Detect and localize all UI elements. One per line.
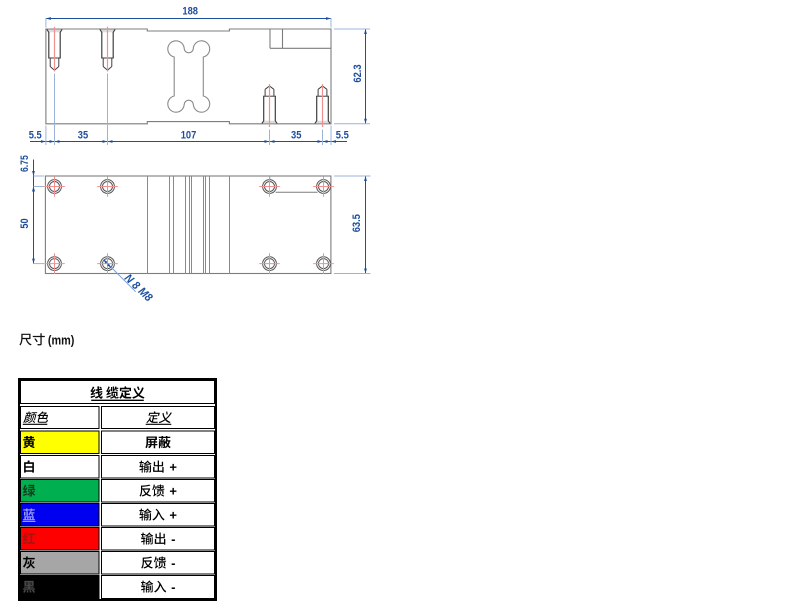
svg-text:+: + [169, 484, 177, 499]
svg-text:5.5: 5.5 [336, 129, 349, 141]
svg-text:35: 35 [78, 129, 88, 141]
svg-text:107: 107 [181, 129, 197, 141]
svg-text:63.5: 63.5 [351, 214, 363, 232]
svg-text:+: + [169, 508, 177, 523]
svg-text:62.3: 62.3 [352, 64, 364, 82]
svg-text:6.75: 6.75 [19, 155, 31, 172]
svg-text:-: - [171, 580, 175, 595]
svg-text:(mm): (mm) [48, 332, 75, 347]
svg-text:188: 188 [182, 6, 198, 18]
svg-text:N 8 M8: N 8 M8 [122, 272, 155, 304]
svg-text:50: 50 [19, 218, 31, 228]
svg-text:5.5: 5.5 [29, 129, 42, 141]
svg-text:-: - [171, 532, 175, 547]
svg-text:35: 35 [291, 129, 301, 141]
svg-text:+: + [169, 460, 177, 475]
svg-text:-: - [171, 556, 175, 571]
